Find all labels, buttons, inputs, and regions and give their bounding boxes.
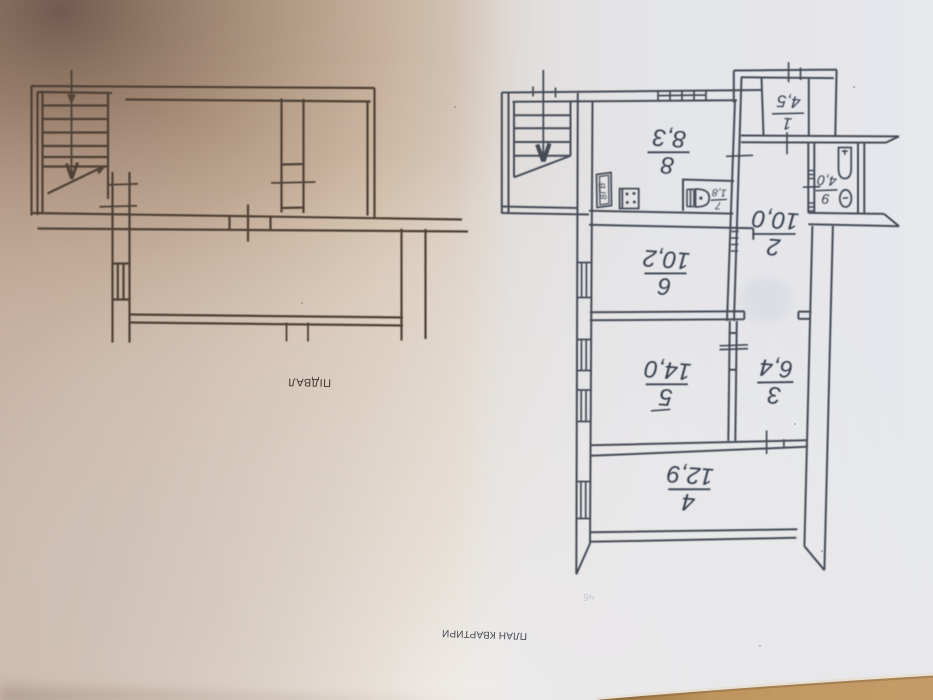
svg-text:6,4: 6,4 [759, 353, 794, 382]
svg-text:10,0: 10,0 [751, 204, 800, 234]
svg-text:2: 2 [766, 233, 782, 261]
svg-text:4: 4 [681, 488, 696, 516]
svg-text:4,5: 4,5 [776, 91, 801, 112]
svg-text:12,9: 12,9 [666, 460, 714, 490]
svg-text:4,0: 4,0 [816, 172, 837, 189]
svg-text:3: 3 [766, 381, 782, 409]
svg-text:14,0: 14,0 [643, 355, 692, 385]
svg-text:ПІДВАЛ: ПІДВАЛ [288, 376, 331, 389]
svg-text:6: 6 [656, 272, 672, 300]
svg-text:8: 8 [659, 151, 675, 179]
svg-text:9: 9 [821, 191, 830, 208]
svg-text:1: 1 [782, 114, 793, 134]
svg-text:1,8: 1,8 [711, 186, 727, 199]
svg-text:5: 5 [658, 383, 674, 411]
svg-text:10,2: 10,2 [642, 244, 690, 274]
svg-text:8,3: 8,3 [651, 123, 687, 152]
svg-text:чб: чб [583, 591, 595, 604]
